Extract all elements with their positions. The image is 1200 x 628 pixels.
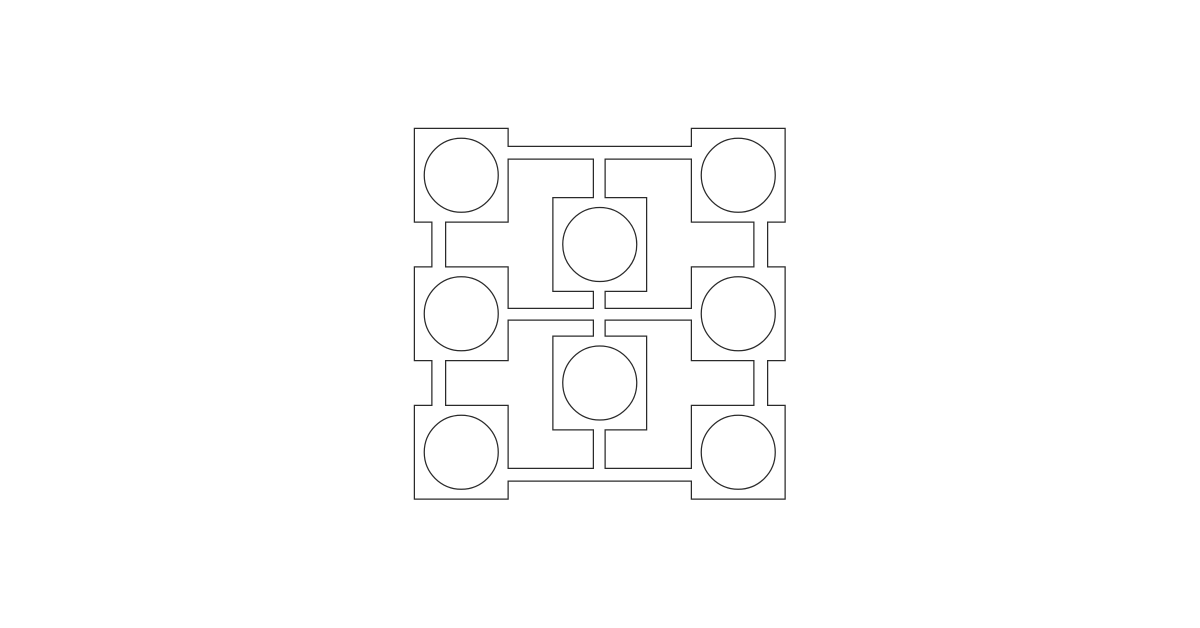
room-bottom-right-fill	[692, 406, 785, 499]
canvas	[0, 0, 1200, 628]
room-top-right-fill	[692, 129, 785, 222]
pattern-fills	[415, 129, 785, 499]
channel-right-vertical-fill	[755, 175, 768, 452]
pattern-figure	[0, 0, 1200, 628]
room-top-left-fill	[415, 129, 508, 222]
channel-left-vertical-fill	[433, 175, 446, 452]
room-bottom-left-fill	[415, 406, 508, 499]
channel-center-vertical-fill	[594, 152, 605, 475]
